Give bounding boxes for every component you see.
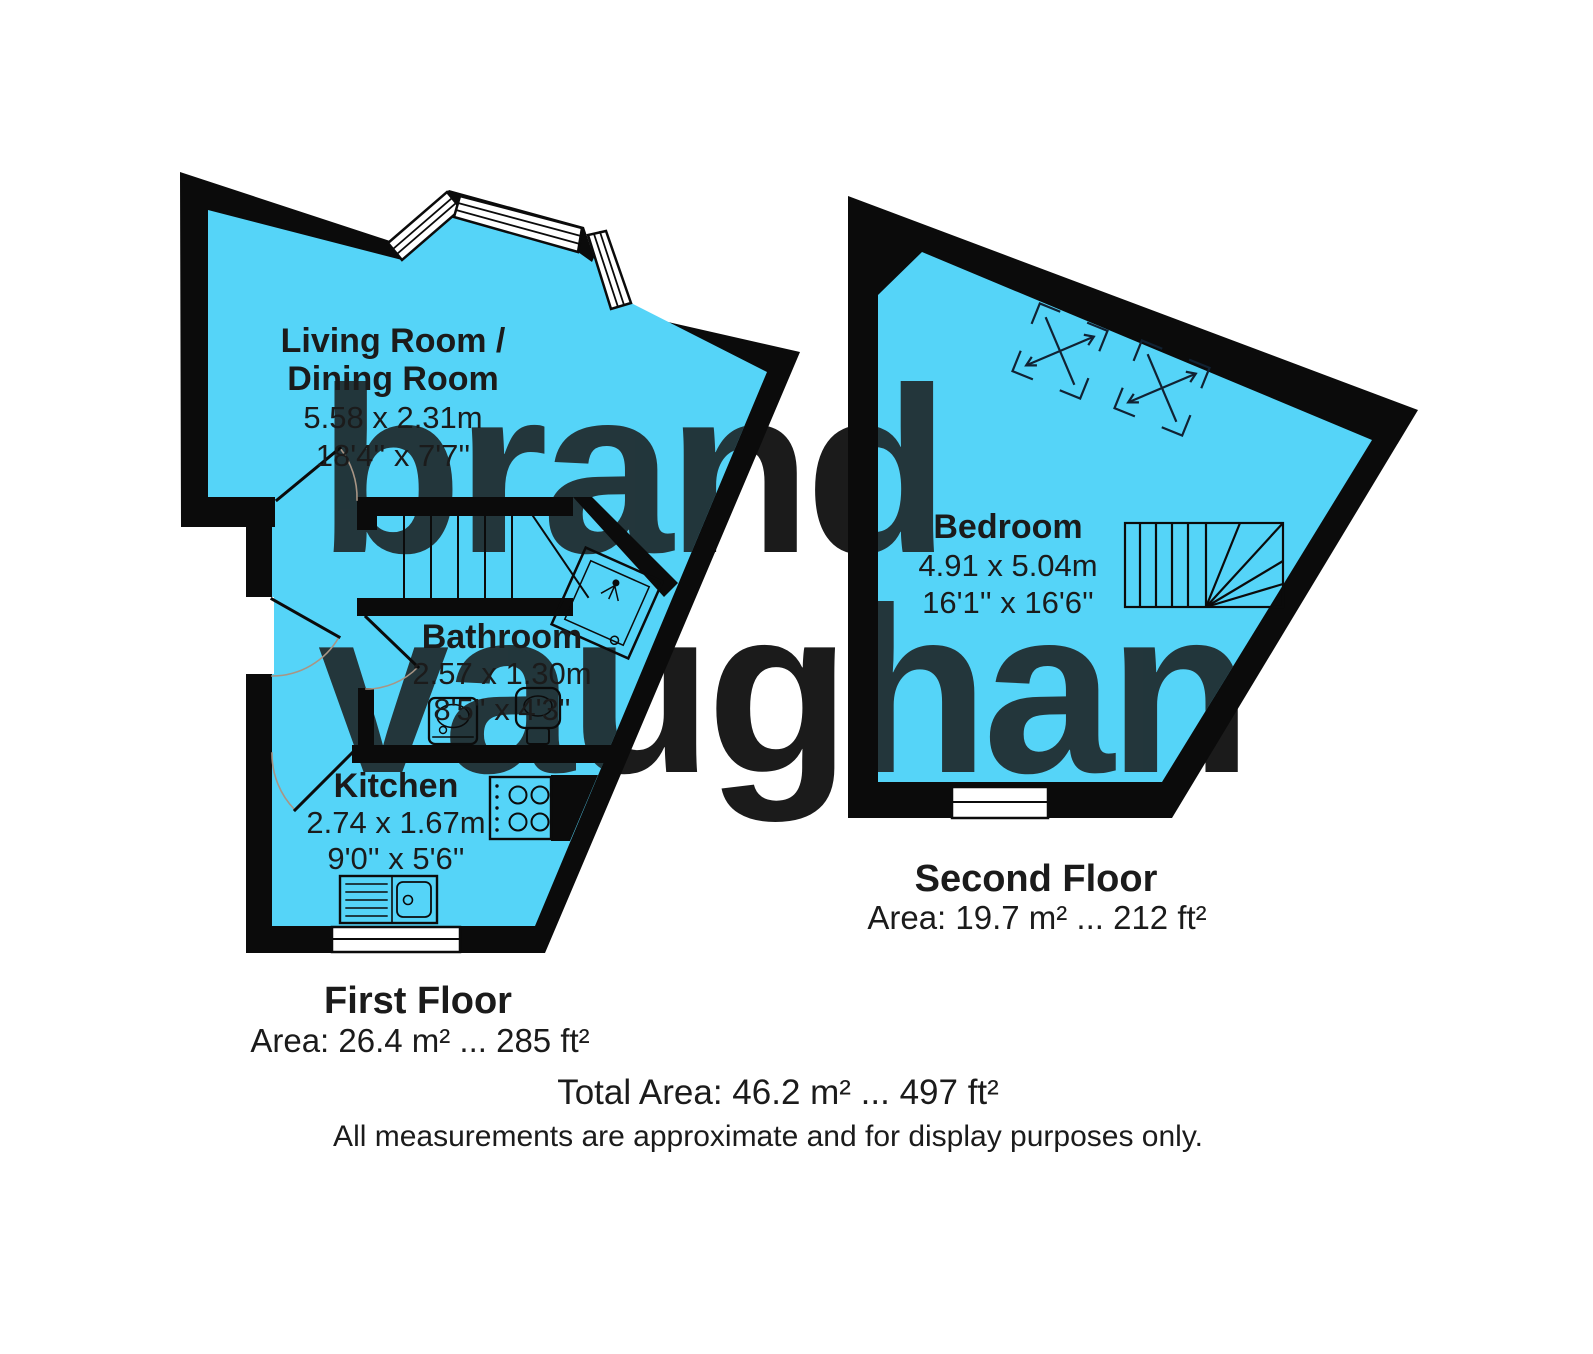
floorplan-canvas: brand vaughan brand vaughan bbox=[0, 0, 1593, 1354]
bedroom-window bbox=[952, 787, 1048, 818]
second-floor-area: Area: 19.7 m² ... 212 ft² bbox=[867, 899, 1206, 937]
entry-door-opening bbox=[242, 597, 274, 674]
bedroom-label: Bedroom bbox=[933, 508, 1082, 546]
bathroom-label: Bathroom bbox=[422, 618, 583, 656]
bedroom-dim-imperial: 16'1'' x 16'6'' bbox=[922, 585, 1094, 620]
bathroom-hall-wall bbox=[358, 688, 374, 748]
kitchen-label: Kitchen bbox=[334, 767, 459, 805]
bedroom-dim-metric: 4.91 x 5.04m bbox=[918, 548, 1097, 583]
bathroom-dim-metric: 2.57 x 1.30m bbox=[412, 656, 591, 691]
stair-bottom-wall bbox=[357, 598, 573, 616]
living-room-dim-metric: 5.58 x 2.31m bbox=[303, 400, 482, 435]
second-floor-title: Second Floor bbox=[915, 858, 1158, 901]
living-room-dim-imperial: 18'4'' x 7'7'' bbox=[316, 438, 470, 473]
hall-jut-wall bbox=[181, 497, 275, 527]
bathroom-kitchen-wall bbox=[352, 745, 618, 763]
bathroom-dim-imperial: 8'5'' x 4'3'' bbox=[433, 692, 570, 727]
living-room-label-line1: Living Room / bbox=[281, 322, 506, 360]
stair-top-wall-block bbox=[357, 497, 377, 530]
kitchen-dim-metric: 2.74 x 1.67m bbox=[306, 805, 485, 840]
first-floor-area: Area: 26.4 m² ... 285 ft² bbox=[250, 1022, 589, 1060]
living-room-label-line2: Dining Room bbox=[287, 360, 499, 398]
first-floor-title: First Floor bbox=[324, 980, 512, 1023]
disclaimer: All measurements are approximate and for… bbox=[333, 1120, 1203, 1154]
kitchen-window bbox=[332, 927, 460, 952]
kitchen-dim-imperial: 9'0'' x 5'6'' bbox=[327, 841, 464, 876]
stair-top-wall bbox=[357, 497, 573, 516]
total-area: Total Area: 46.2 m² ... 497 ft² bbox=[557, 1073, 999, 1113]
